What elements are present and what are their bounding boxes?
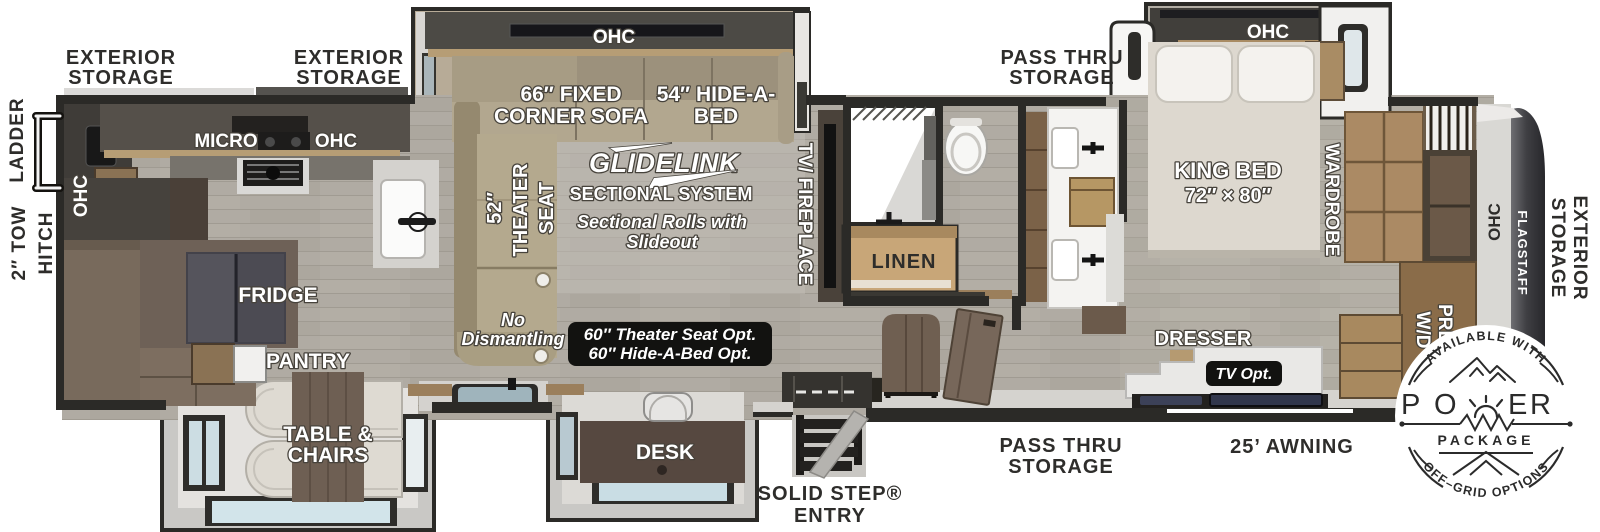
svg-text:ENTRY: ENTRY bbox=[794, 505, 866, 527]
svg-text:SECTIONAL SYSTEM: SECTIONAL SYSTEM bbox=[570, 184, 753, 204]
svg-text:HITCH: HITCH bbox=[36, 211, 57, 274]
svg-text:THEATER: THEATER bbox=[510, 163, 532, 257]
svg-text:TABLE &: TABLE & bbox=[283, 423, 372, 446]
svg-text:SOLID STEP®: SOLID STEP® bbox=[758, 483, 903, 505]
svg-text:60″ Theater Seat Opt.: 60″ Theater Seat Opt. bbox=[584, 325, 757, 344]
svg-text:LINEN: LINEN bbox=[872, 251, 937, 273]
svg-text:60″ Hide-A-Bed Opt.: 60″ Hide-A-Bed Opt. bbox=[588, 344, 751, 363]
svg-text:OHC: OHC bbox=[315, 131, 358, 152]
svg-text:LADDER: LADDER bbox=[7, 97, 28, 182]
svg-text:OHC: OHC bbox=[593, 27, 636, 48]
svg-text:EXTERIOR: EXTERIOR bbox=[294, 47, 404, 69]
svg-text:PACKAGE: PACKAGE bbox=[1438, 432, 1535, 448]
svg-text:PASS THRU: PASS THRU bbox=[999, 435, 1122, 457]
svg-text:BED: BED bbox=[694, 105, 738, 128]
svg-text:DRESSER: DRESSER bbox=[1155, 328, 1252, 350]
svg-text:SEAT: SEAT bbox=[536, 182, 558, 234]
svg-text:2″ TOW: 2″ TOW bbox=[9, 206, 30, 281]
svg-text:EXTERIOR: EXTERIOR bbox=[1569, 195, 1590, 300]
svg-text:TV Opt.: TV Opt. bbox=[1216, 366, 1273, 383]
svg-text:W/D: W/D bbox=[1412, 312, 1433, 349]
svg-text:OHC: OHC bbox=[1247, 22, 1290, 43]
svg-text:STORAGE: STORAGE bbox=[296, 67, 402, 89]
svg-text:54″ HIDE-A-: 54″ HIDE-A- bbox=[657, 83, 776, 106]
svg-text:OHC: OHC bbox=[71, 175, 92, 218]
svg-text:Sectional Rolls with: Sectional Rolls with bbox=[577, 212, 747, 232]
svg-text:E: E bbox=[1508, 389, 1527, 421]
svg-text:PANTRY: PANTRY bbox=[266, 350, 350, 373]
svg-text:25’ AWNING: 25’ AWNING bbox=[1230, 436, 1354, 458]
svg-text:FRIDGE: FRIDGE bbox=[238, 284, 317, 307]
svg-text:FLAGSTAFF: FLAGSTAFF bbox=[1515, 210, 1530, 295]
svg-text:PASS THRU: PASS THRU bbox=[1000, 47, 1123, 69]
svg-text:P: P bbox=[1401, 389, 1420, 421]
svg-text:72″ × 80″: 72″ × 80″ bbox=[1185, 185, 1272, 207]
svg-text:O: O bbox=[1434, 389, 1457, 421]
svg-text:Dismantling: Dismantling bbox=[461, 329, 564, 349]
svg-text:WARDROBE: WARDROBE bbox=[1321, 144, 1342, 257]
svg-text:No: No bbox=[501, 310, 525, 330]
svg-text:CORNER SOFA: CORNER SOFA bbox=[494, 105, 648, 128]
svg-text:Slideout: Slideout bbox=[627, 232, 699, 252]
svg-text:52″: 52″ bbox=[484, 192, 506, 224]
svg-text:CHAIRS: CHAIRS bbox=[288, 444, 369, 467]
svg-text:STORAGE: STORAGE bbox=[68, 67, 174, 89]
svg-text:STORAGE: STORAGE bbox=[1008, 456, 1114, 478]
svg-text:EXTERIOR: EXTERIOR bbox=[66, 47, 176, 69]
svg-text:MICRO: MICRO bbox=[194, 131, 257, 152]
svg-text:R: R bbox=[1530, 389, 1551, 421]
svg-text:DESK: DESK bbox=[636, 441, 694, 464]
svg-text:STORAGE: STORAGE bbox=[1009, 67, 1115, 89]
svg-text:STORAGE: STORAGE bbox=[1547, 198, 1568, 299]
svg-text:KING BED: KING BED bbox=[1174, 158, 1282, 183]
svg-text:OHC: OHC bbox=[1485, 203, 1504, 241]
svg-text:66″ FIXED: 66″ FIXED bbox=[520, 83, 621, 106]
svg-text:TV/ FIREPLACE: TV/ FIREPLACE bbox=[794, 143, 815, 286]
